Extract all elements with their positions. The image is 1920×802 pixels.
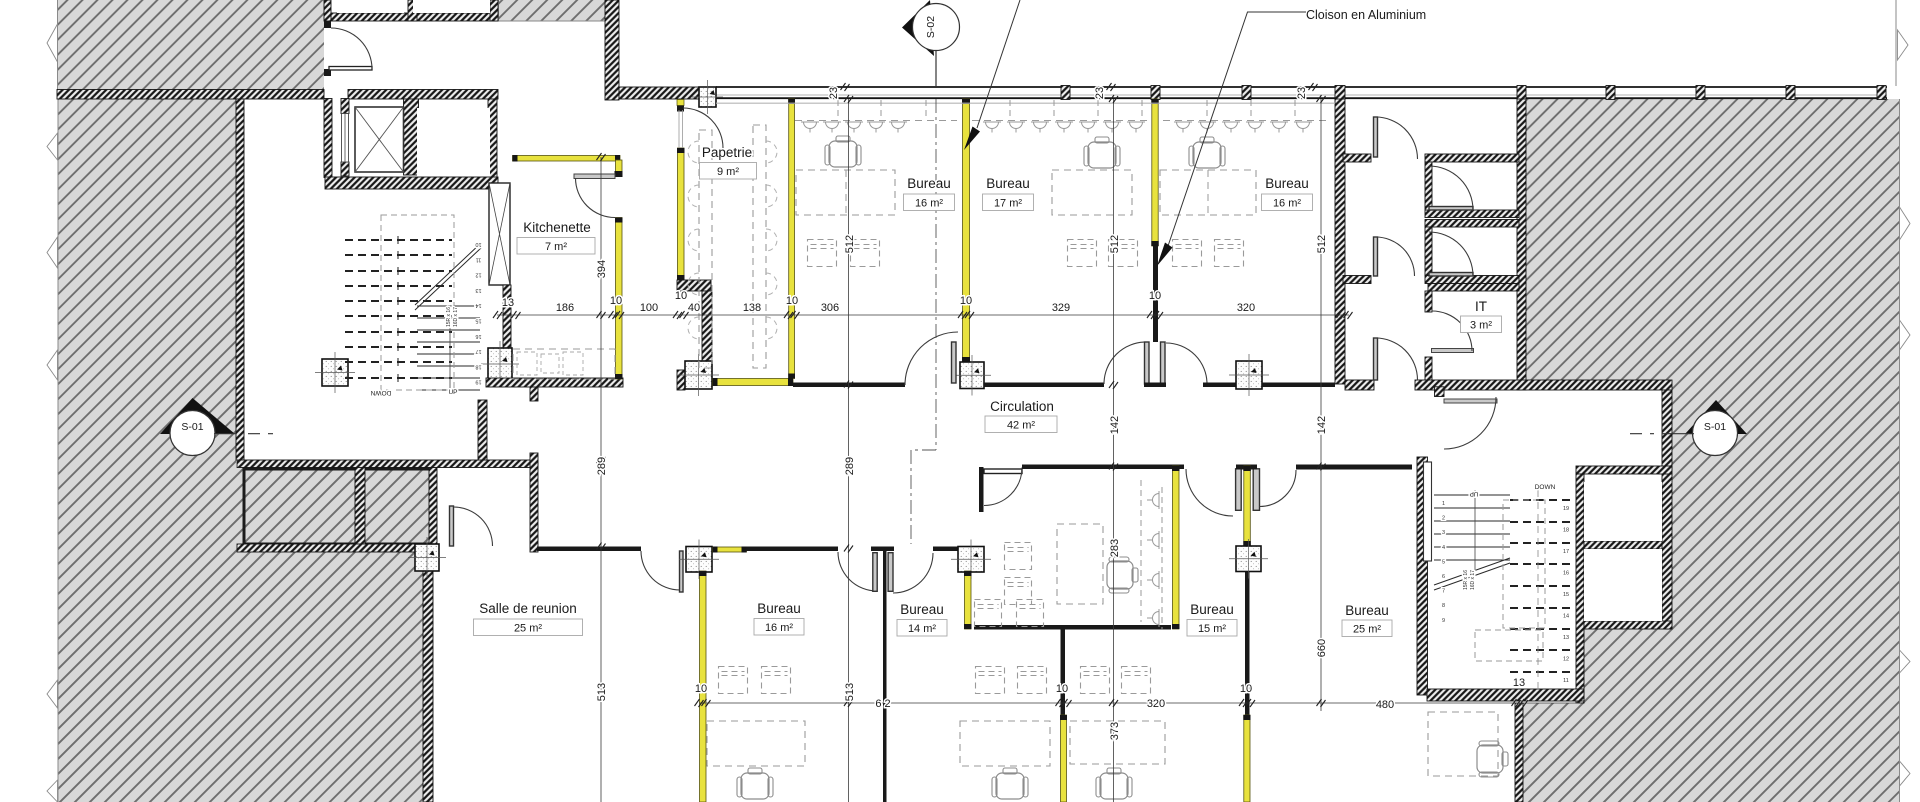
svg-text:16D x 17: 16D x 17 <box>453 307 459 327</box>
svg-text:16: 16 <box>475 333 481 339</box>
svg-text:10: 10 <box>695 683 707 695</box>
svg-text:13: 13 <box>502 297 514 309</box>
svg-text:Salle de reunion: Salle de reunion <box>479 601 577 616</box>
svg-text:11: 11 <box>1563 678 1569 684</box>
svg-text:15: 15 <box>475 318 481 324</box>
svg-text:23: 23 <box>828 87 840 99</box>
svg-text:10: 10 <box>1240 683 1252 695</box>
svg-text:18: 18 <box>475 363 481 369</box>
svg-text:17: 17 <box>1563 549 1569 555</box>
svg-text:100: 100 <box>640 302 658 314</box>
svg-text:512: 512 <box>1109 235 1121 253</box>
svg-text:8: 8 <box>1442 603 1445 609</box>
svg-text:15 m²: 15 m² <box>1198 623 1226 635</box>
svg-text:Bureau: Bureau <box>757 601 801 616</box>
svg-text:25 m²: 25 m² <box>1353 624 1381 636</box>
svg-text:142: 142 <box>1316 416 1328 434</box>
svg-text:14 m²: 14 m² <box>908 623 936 635</box>
svg-text:16D x 17: 16D x 17 <box>1470 570 1476 590</box>
svg-text:6 2: 6 2 <box>875 698 890 710</box>
svg-text:S-01: S-01 <box>1704 421 1726 433</box>
svg-text:10: 10 <box>1056 683 1068 695</box>
svg-text:9 m²: 9 m² <box>717 166 739 178</box>
svg-text:16 m²: 16 m² <box>765 622 793 634</box>
svg-text:40: 40 <box>688 302 700 314</box>
svg-text:S-02: S-02 <box>925 16 937 38</box>
svg-text:289: 289 <box>596 457 608 475</box>
svg-text:513: 513 <box>596 683 608 701</box>
svg-text:UP: UP <box>448 389 457 396</box>
svg-text:18: 18 <box>1563 528 1569 534</box>
svg-text:3 m²: 3 m² <box>1470 320 1492 332</box>
svg-text:6: 6 <box>1442 574 1445 580</box>
svg-text:10: 10 <box>475 241 481 247</box>
svg-text:5: 5 <box>1442 559 1445 565</box>
svg-text:13: 13 <box>1513 677 1525 689</box>
svg-text:Cloison en Aluminium: Cloison en Aluminium <box>1306 8 1426 22</box>
svg-text:IT: IT <box>1475 299 1487 314</box>
svg-text:16 m²: 16 m² <box>1273 198 1301 210</box>
svg-text:10: 10 <box>1149 290 1161 302</box>
svg-text:19: 19 <box>475 379 481 385</box>
svg-text:17 m²: 17 m² <box>994 198 1022 210</box>
svg-text:14: 14 <box>475 302 481 308</box>
svg-text:373: 373 <box>1109 722 1121 740</box>
svg-text:16: 16 <box>1563 571 1569 577</box>
svg-text:283: 283 <box>1109 539 1121 557</box>
svg-text:306: 306 <box>821 302 839 314</box>
svg-text:Kitchenette: Kitchenette <box>523 220 591 235</box>
svg-text:DOWN: DOWN <box>1535 484 1556 491</box>
svg-text:10: 10 <box>960 295 972 307</box>
svg-text:1: 1 <box>1442 501 1445 507</box>
svg-text:Bureau: Bureau <box>1265 176 1309 191</box>
svg-text:320: 320 <box>1237 302 1255 314</box>
svg-text:S-01: S-01 <box>181 421 203 433</box>
svg-text:9: 9 <box>1442 618 1445 624</box>
svg-text:23: 23 <box>1094 87 1106 99</box>
svg-text:DOWN: DOWN <box>370 389 391 396</box>
svg-text:Bureau: Bureau <box>986 176 1030 191</box>
svg-text:142: 142 <box>1109 416 1121 434</box>
svg-text:660: 660 <box>1316 639 1328 657</box>
svg-text:Bureau: Bureau <box>1345 603 1389 618</box>
svg-text:12: 12 <box>1563 657 1569 663</box>
svg-text:512: 512 <box>1316 235 1328 253</box>
svg-text:Bureau: Bureau <box>1190 602 1234 617</box>
svg-text:15R x 16: 15R x 16 <box>1463 570 1469 590</box>
svg-text:10: 10 <box>786 295 798 307</box>
svg-text:4: 4 <box>1442 545 1445 551</box>
svg-text:12: 12 <box>475 272 481 278</box>
svg-text:3: 3 <box>1442 530 1445 536</box>
svg-text:289: 289 <box>844 457 856 475</box>
svg-text:Bureau: Bureau <box>907 176 951 191</box>
svg-text:7 m²: 7 m² <box>545 241 567 253</box>
svg-text:Papetrie: Papetrie <box>702 145 752 160</box>
svg-text:480: 480 <box>1376 699 1394 711</box>
svg-text:14: 14 <box>1563 614 1569 620</box>
svg-text:19: 19 <box>1563 506 1569 512</box>
svg-text:10: 10 <box>610 295 622 307</box>
svg-text:42 m²: 42 m² <box>1007 420 1035 432</box>
svg-text:25 m²: 25 m² <box>514 623 542 635</box>
svg-text:16 m²: 16 m² <box>915 198 943 210</box>
svg-text:17: 17 <box>475 348 481 354</box>
svg-text:Circulation: Circulation <box>990 399 1054 414</box>
svg-text:10: 10 <box>675 290 687 302</box>
svg-text:186: 186 <box>556 302 574 314</box>
svg-text:320: 320 <box>1147 698 1165 710</box>
svg-text:2: 2 <box>1442 516 1445 522</box>
svg-text:329: 329 <box>1052 302 1070 314</box>
svg-text:394: 394 <box>596 260 608 278</box>
svg-text:7: 7 <box>1442 589 1445 595</box>
svg-text:512: 512 <box>844 235 856 253</box>
svg-text:23: 23 <box>1296 87 1308 99</box>
svg-text:13: 13 <box>475 287 481 293</box>
svg-text:UP: UP <box>1469 490 1478 497</box>
svg-text:513: 513 <box>844 683 856 701</box>
svg-text:15R x 16: 15R x 16 <box>446 307 452 327</box>
svg-text:15: 15 <box>1563 592 1569 598</box>
svg-text:Bureau: Bureau <box>900 602 944 617</box>
svg-text:11: 11 <box>476 256 482 262</box>
svg-text:138: 138 <box>743 302 761 314</box>
svg-text:13: 13 <box>1563 635 1569 641</box>
